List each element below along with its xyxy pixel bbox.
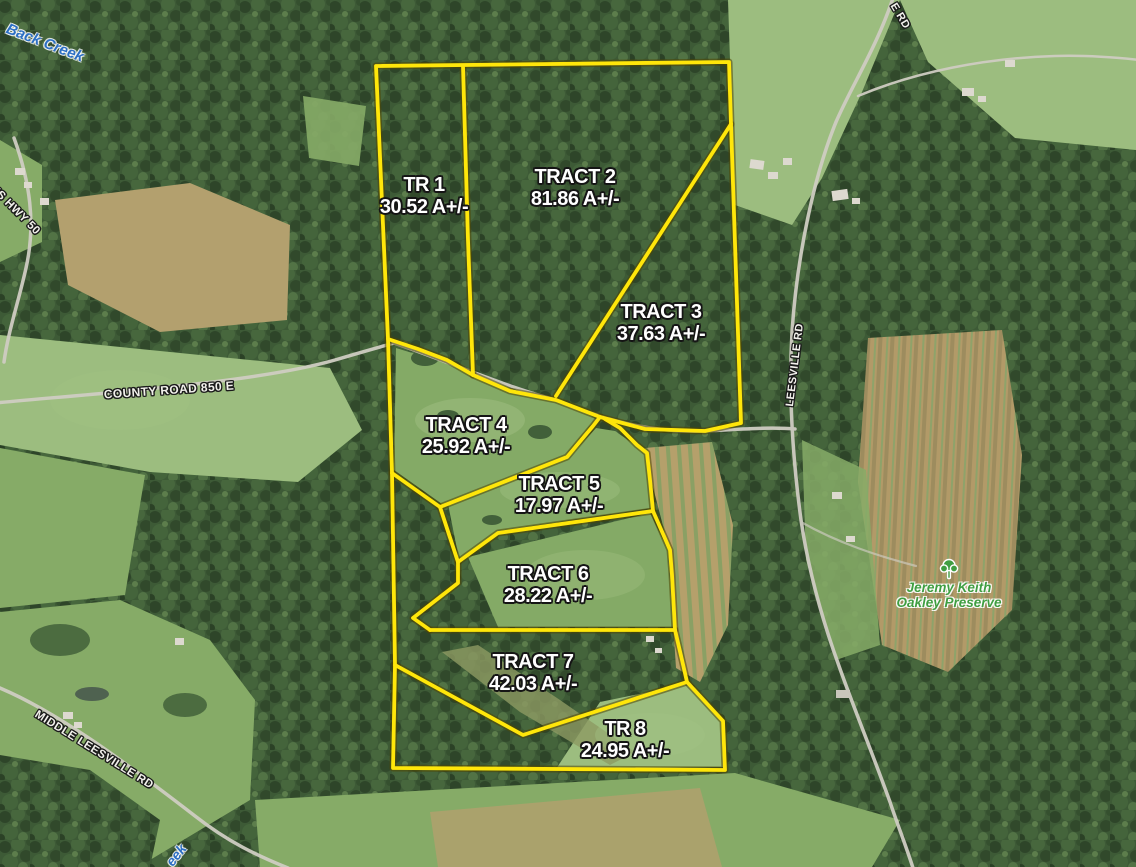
tract-label-tract-2: TRACT 2 81.86 A+/-: [531, 166, 619, 210]
tract-label-tract-3: TRACT 3 37.63 A+/-: [617, 301, 705, 345]
tract-acreage: 28.22 A+/-: [504, 585, 592, 607]
parking-area: [836, 690, 850, 698]
building: [962, 88, 974, 96]
pond: [75, 687, 109, 701]
building: [175, 638, 184, 645]
building: [832, 492, 842, 499]
building: [24, 182, 32, 188]
aerial-parcel-map: TR 1 30.52 A+/- TRACT 2 81.86 A+/- TRACT…: [0, 0, 1136, 867]
tract-acreage: 24.95 A+/-: [581, 740, 669, 762]
building: [40, 198, 49, 205]
tract-name: TRACT 2: [535, 166, 616, 188]
tract-acreage: 17.97 A+/-: [515, 495, 603, 517]
tract-name: TR 8: [604, 718, 645, 740]
label-oakley-preserve: Jeremy Keith Oakley Preserve: [896, 581, 1001, 610]
preserve-name-line1: Jeremy Keith: [907, 581, 992, 596]
tract-name: TR 1: [403, 174, 444, 196]
preserve-name-line2: Oakley Preserve: [896, 596, 1001, 611]
building: [655, 648, 662, 653]
tract-label-tr-8: TR 8 24.95 A+/-: [581, 718, 669, 762]
building: [846, 536, 855, 542]
building: [852, 198, 860, 204]
building: [783, 158, 792, 165]
building: [978, 96, 986, 102]
tract-acreage: 25.92 A+/-: [422, 436, 510, 458]
map-graphics: [0, 0, 1136, 867]
tract-label-tract-7: TRACT 7 42.03 A+/-: [489, 651, 577, 695]
tract-label-tr-1: TR 1 30.52 A+/-: [380, 174, 468, 218]
tract-name: TRACT 7: [493, 651, 574, 673]
tract-name: TRACT 6: [508, 563, 589, 585]
tract-acreage: 42.03 A+/-: [489, 673, 577, 695]
tract-name: TRACT 5: [519, 473, 600, 495]
building: [63, 712, 73, 719]
tract-acreage: 37.63 A+/-: [617, 323, 705, 345]
building: [74, 722, 82, 728]
tract-name: TRACT 4: [426, 414, 507, 436]
tract-name: TRACT 3: [621, 301, 702, 323]
building: [768, 172, 778, 179]
tract-acreage: 30.52 A+/-: [380, 196, 468, 218]
tract-acreage: 81.86 A+/-: [531, 188, 619, 210]
building: [1005, 60, 1015, 67]
building: [646, 636, 654, 642]
building: [15, 168, 25, 175]
tract-label-tract-4: TRACT 4 25.92 A+/-: [422, 414, 510, 458]
tract-label-tract-6: TRACT 6 28.22 A+/-: [504, 563, 592, 607]
tract-label-tract-5: TRACT 5 17.97 A+/-: [515, 473, 603, 517]
